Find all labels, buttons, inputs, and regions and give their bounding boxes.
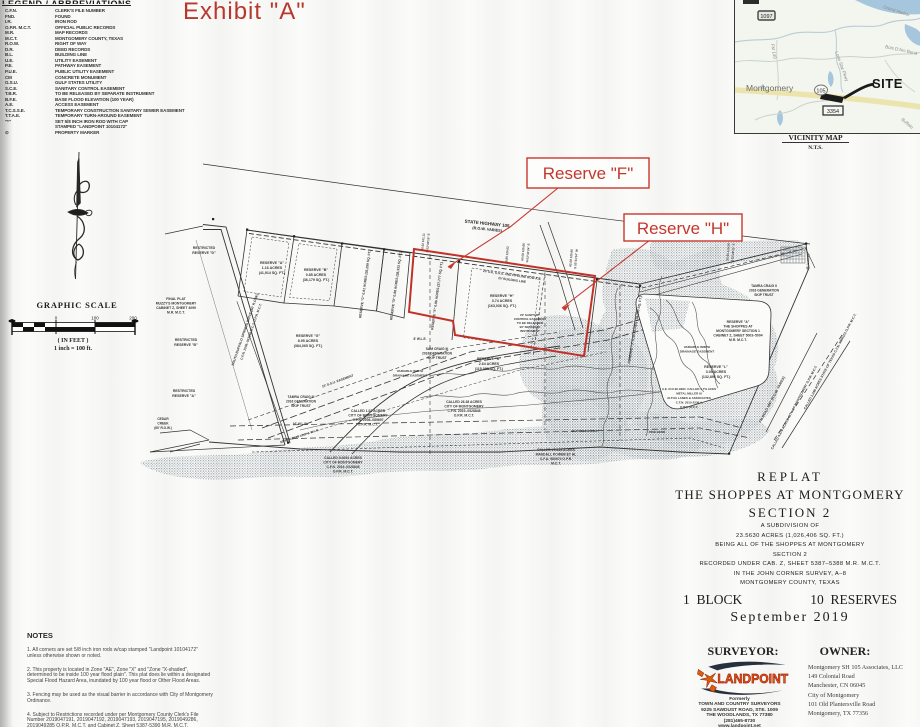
- svg-text:1.16 ACRES: 1.16 ACRES: [262, 266, 283, 270]
- svg-text:GRAPHIC SCALE: GRAPHIC SCALE: [36, 300, 117, 310]
- svg-text:RESERVE "D": RESERVE "D": [192, 251, 216, 255]
- svg-text:RESERVE "K": RESERVE "K": [477, 357, 501, 361]
- svg-text:VARIABLE WIDTH: VARIABLE WIDTH: [684, 345, 711, 349]
- svg-text:RESTRICTED: RESTRICTED: [173, 389, 196, 393]
- svg-text:3.05 ACRES: 3.05 ACRES: [706, 370, 727, 374]
- svg-text:CALLED 26.38 ACRES: CALLED 26.38 ACRES: [446, 400, 483, 404]
- svg-text:A.E. R.O.W.-DED. CALLED 4.7% A: A.E. R.O.W.-DED. CALLED 4.7% ACES: [662, 387, 716, 391]
- svg-text:RESERVE "A": RESERVE "A": [172, 394, 196, 398]
- svg-text:S 02°31'24" W: S 02°31'24" W: [573, 249, 579, 269]
- svg-text:(384,065 SQ. FT.): (384,065 SQ. FT.): [294, 344, 323, 348]
- svg-text:RESERVE "L": RESERVE "L": [704, 365, 728, 369]
- svg-text:SOUTH BUFFALO SPRINGS DRIVE (6: SOUTH BUFFALO SPRINGS DRIVE (60' R.O.W.): [231, 293, 260, 366]
- svg-text:0: 0: [55, 316, 58, 321]
- svg-text:SKIP TRUST: SKIP TRUST: [427, 356, 447, 360]
- svg-text:ALTHA LANES & ASSOCIATES: ALTHA LANES & ASSOCIATES: [667, 396, 711, 400]
- svg-text:CABINET Z, SHEET 5003–5004: CABINET Z, SHEET 5003–5004: [713, 334, 762, 338]
- svg-text:(36,179 SQ. FT.): (36,179 SQ. FT.): [303, 278, 330, 282]
- svg-text:M.R. M.C.T.: M.R. M.C.T.: [729, 338, 747, 342]
- svg-text:C.F.N. 2019–0528848: C.F.N. 2019–0528848: [327, 465, 360, 469]
- svg-text:RESERVE "C" 0.81 ACRES (35,299: RESERVE "C" 0.81 ACRES (35,299 SQ. FT.): [358, 249, 372, 318]
- svg-text:C.F.N. 2008–089697: C.F.N. 2008–089697: [352, 418, 383, 422]
- svg-text:CITY OF MONTGOMERY: CITY OF MONTGOMERY: [444, 405, 484, 409]
- svg-text:8.95 ACRES: 8.95 ACRES: [298, 339, 319, 343]
- svg-text:O.P.R. M.C.T.: O.P.R. M.C.T.: [680, 405, 698, 409]
- svg-text:2.64 ACRES: 2.64 ACRES: [479, 362, 500, 366]
- svg-text:( IN FEET ): ( IN FEET ): [58, 337, 89, 344]
- svg-text:8' W.L.E.: 8' W.L.E.: [414, 337, 427, 341]
- svg-text:RESERVE "A": RESERVE "A": [727, 320, 750, 324]
- svg-text:(163,036 SQ. FT.): (163,036 SQ. FT.): [488, 304, 517, 308]
- svg-text:Reserve "F": Reserve "F": [543, 164, 633, 183]
- svg-text:100: 100: [91, 316, 99, 321]
- svg-text:SKIP TRUST: SKIP TRUST: [754, 293, 774, 297]
- svg-text:MONTGOMERY SECTION 1: MONTGOMERY SECTION 1: [716, 329, 760, 333]
- svg-text:CALLED 1.248 ACRES STATE OF TE: CALLED 1.248 ACRES STATE OF TEXAS C.F.N.…: [803, 313, 857, 410]
- svg-text:N 02°31'24" E: N 02°31'24" E: [525, 243, 531, 262]
- svg-text:VARIABLE WIDTH: VARIABLE WIDTH: [397, 369, 424, 373]
- svg-text:RESERVE "G": RESERVE "G": [296, 334, 321, 338]
- svg-text:M.C.T.: M.C.T.: [551, 462, 561, 466]
- svg-text:2016 GENERATION: 2016 GENERATION: [422, 352, 453, 356]
- svg-text:16' W.L.E.: 16' W.L.E.: [293, 422, 308, 426]
- svg-text:FINAL PLAT: FINAL PLAT: [166, 297, 186, 301]
- svg-text:TAMRA CRAIG II: TAMRA CRAIG II: [751, 284, 777, 288]
- svg-text:(41,914 SQ. FT.): (41,914 SQ. FT.): [259, 271, 286, 275]
- svg-text:LANDPOINT: LANDPOINT: [717, 671, 788, 686]
- svg-text:C.F.A. 980974 O.P.R.: C.F.A. 980974 O.P.R.: [540, 457, 572, 461]
- svg-text:2016 GENERATION: 2016 GENERATION: [749, 289, 780, 293]
- svg-text:M.R. M.C.T.: M.R. M.C.T.: [167, 311, 185, 315]
- svg-text:O.P.R. M.C.T.: O.P.R. M.C.T.: [333, 470, 354, 474]
- svg-text:INSTRUMENT: INSTRUMENT: [520, 329, 540, 333]
- svg-text:(132,896 SQ. FT.): (132,896 SQ. FT.): [702, 375, 731, 379]
- svg-text:CREEK: CREEK: [157, 422, 169, 426]
- svg-text:CITY OF MONTGOMERY: CITY OF MONTGOMERY: [323, 461, 363, 465]
- svg-text:(115,088 SQ. FT.): (115,088 SQ. FT.): [475, 367, 504, 371]
- svg-text:RESTRICTED: RESTRICTED: [175, 338, 198, 342]
- svg-text:(60' R.O.W.): (60' R.O.W.): [154, 426, 172, 430]
- svg-text:15' G.S.U. EASEMENT: 15' G.S.U. EASEMENT: [321, 373, 354, 388]
- svg-text:48.12 95.40: 48.12 95.40: [805, 254, 810, 270]
- svg-text:RESERVE "H": RESERVE "H": [490, 294, 514, 298]
- svg-text:30' PIPELINE ESMT: 30' PIPELINE ESMT: [571, 429, 599, 433]
- svg-text:N 02°30'10" E: N 02°30'10" E: [425, 233, 431, 252]
- svg-text:C.F.N. 2019–0528848: C.F.N. 2019–0528848: [448, 409, 481, 413]
- svg-text:DRAINAGE EASEMENT: DRAINAGE EASEMENT: [680, 350, 715, 354]
- svg-text:CALLED 5.9294 ACRES: CALLED 5.9294 ACRES: [324, 456, 362, 460]
- svg-text:CALLED 29.459 ACRES: CALLED 29.459 ACRES: [537, 448, 575, 452]
- svg-text:DRAINAGE EASEMENT: DRAINAGE EASEMENT: [393, 374, 428, 378]
- svg-text:RESERVE "D" 0.88 ACRES (38,333: RESERVE "D" 0.88 ACRES (38,333 SQ. FT.): [389, 251, 403, 320]
- svg-text:THE SHOPPES AT: THE SHOPPES AT: [723, 325, 753, 329]
- svg-text:O.P.R. M.C.T.: O.P.R. M.C.T.: [358, 423, 379, 427]
- svg-text:RESERVE "B": RESERVE "B": [304, 268, 328, 272]
- svg-text:0.85 ACRES: 0.85 ACRES: [306, 273, 327, 277]
- svg-text:1 inch = 100 ft.: 1 inch = 100 ft.: [54, 346, 92, 352]
- svg-text:RANDALL POWER ET AL: RANDALL POWER ET AL: [536, 453, 577, 457]
- svg-text:CABINET Z, SHEET 4099: CABINET Z, SHEET 4099: [156, 306, 196, 310]
- svg-text:SAM CRAIG III: SAM CRAIG III: [426, 347, 449, 351]
- svg-text:CEDAR: CEDAR: [157, 417, 169, 421]
- svg-text:PINE BEND: PINE BEND: [649, 430, 666, 434]
- svg-text:O.P.R. M.C.T.: O.P.R. M.C.T.: [454, 414, 475, 418]
- svg-text:RESERVE "B": RESERVE "B": [174, 343, 198, 347]
- svg-text:3.74 ACRES: 3.74 ACRES: [492, 299, 513, 303]
- svg-text:2016 GENERATION: 2016 GENERATION: [286, 400, 317, 404]
- svg-text:TAMRA CRAIG III: TAMRA CRAIG III: [288, 395, 315, 399]
- svg-text:CITY OF MONTGOMERY: CITY OF MONTGOMERY: [348, 414, 388, 418]
- svg-text:Reserve "H": Reserve "H": [637, 219, 729, 238]
- svg-text:SKIP TRUST: SKIP TRUST: [291, 404, 311, 408]
- svg-text:C.F.N. 2015-2236 A: C.F.N. 2015-2236 A: [676, 401, 703, 405]
- svg-text:RESERVE "F" 0.86 ACRES (37,777: RESERVE "F" 0.86 ACRES (37,777 SQ. FT.): [430, 262, 444, 330]
- svg-text:200: 200: [129, 316, 137, 321]
- svg-text:CALLED 1.02 ACRES: CALLED 1.02 ACRES: [351, 409, 386, 413]
- svg-text:RESERVE "A": RESERVE "A": [260, 261, 284, 265]
- svg-text:METAL MILLER III: METAL MILLER III: [676, 392, 702, 396]
- svg-text:MUZZY'S MONTGOMERY: MUZZY'S MONTGOMERY: [156, 302, 197, 306]
- svg-text:48.85 120.02: 48.85 120.02: [504, 246, 510, 264]
- svg-text:RESTRICTED: RESTRICTED: [193, 246, 216, 250]
